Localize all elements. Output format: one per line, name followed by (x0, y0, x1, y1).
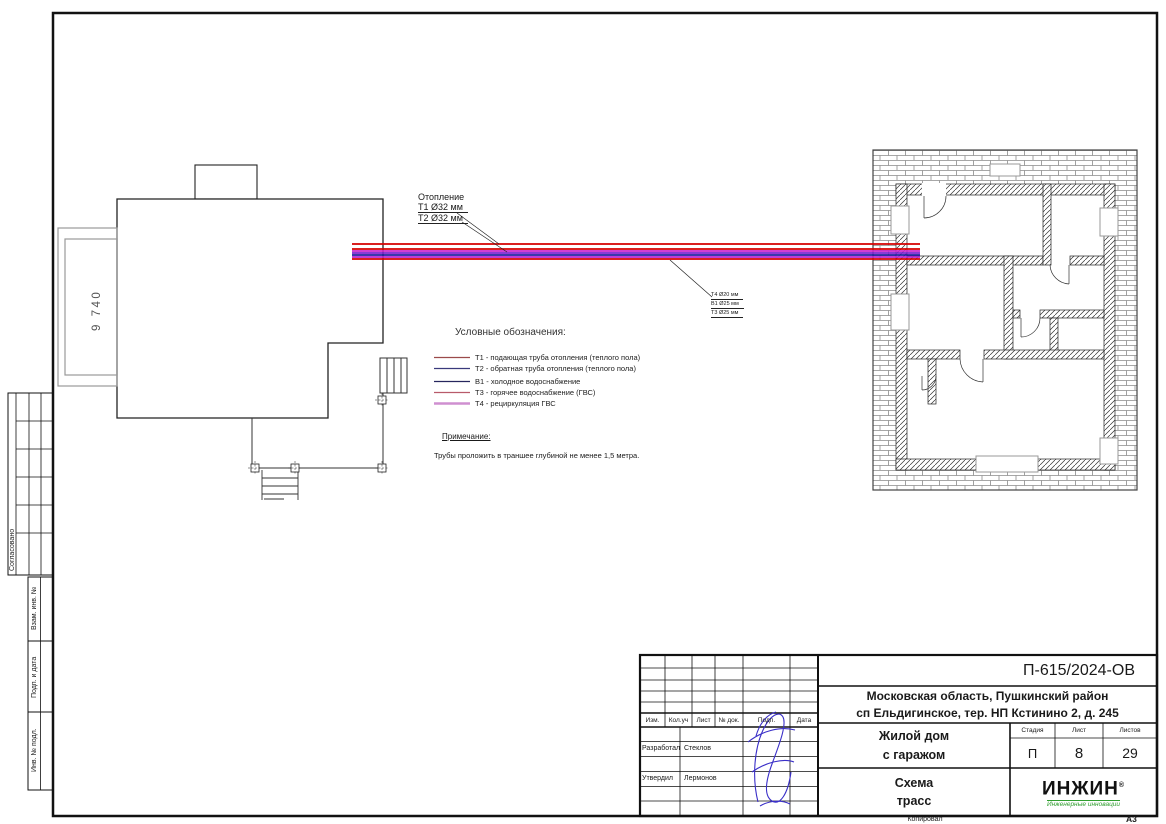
legend-swatches (434, 358, 470, 404)
legend-item-t1: Т1 - подающая труба отопления (теплого п… (475, 353, 640, 362)
margin-label-vzam-inv: Взам. инв. № (31, 587, 38, 630)
entrance-opening (922, 183, 946, 196)
tb-address: Московская область, Пушкинский район сп … (818, 687, 1157, 722)
terrace-outline (58, 228, 117, 386)
legend-title: Условные обозначения: (455, 327, 566, 338)
tb-object-line2: с гаражом (883, 746, 945, 765)
legend-item-t3: Т3 - горячее водоснабжение (ГВС) (475, 388, 595, 397)
water-callout: Т4 Ø20 мм В1 Ø25 мм Т3 Ø25 мм (711, 291, 744, 318)
margin-label-approved: Согласовано (9, 529, 16, 571)
heating-callout-pipe2: Т2 Ø32 мм (418, 213, 468, 224)
tb-object-line1: Жилой дом (879, 727, 949, 746)
tb-sheet-value: 8 (1055, 738, 1103, 768)
drawing-sheet: Отопление Т1 Ø32 мм Т2 Ø32 мм Т4 Ø20 мм … (0, 0, 1166, 824)
water-callout-pipe1: Т4 Ø20 мм (711, 291, 743, 300)
pipe-bundle (352, 244, 920, 259)
tb-object: Жилой дом с гаражом (818, 723, 1010, 768)
tb-col-kol: Кол.уч (665, 713, 692, 727)
legend-item-t2: Т2 - обратная труба отопления (теплого п… (475, 364, 636, 373)
legend-item-t4: Т4 - рециркуляция ГВС (475, 399, 556, 408)
logo-tagline: Инженерные инновации (1047, 800, 1120, 808)
company-logo: ИНЖИН® Инженерные инновации (1010, 768, 1157, 816)
tb-col-dok: № док. (715, 713, 743, 727)
tb-col-data: Дата (790, 713, 818, 727)
tb-stage-value: П (1010, 738, 1055, 768)
tb-developed-label: Разработал (642, 745, 680, 752)
heating-callout-pipe1: Т1 Ø32 мм (418, 202, 468, 213)
tb-sheets-label: Листов (1103, 723, 1157, 738)
note-text: Трубы проложить в траншее глубиной не ме… (434, 451, 639, 460)
legend-item-b1: В1 - холодное водоснабжение (475, 377, 580, 386)
tb-col-podp: Подп. (743, 713, 790, 727)
tb-approved-name: Лермонов (684, 775, 717, 782)
tb-drawing-title: Схема трасс (818, 768, 1010, 816)
margin-label-inv-podl: Инв. № подл. (31, 728, 38, 772)
dimension-label: 9 740 (91, 290, 103, 331)
format-label: А3 (1126, 814, 1137, 824)
note-title: Примечание: (442, 432, 491, 441)
tb-developed-name: Стеклов (684, 745, 711, 752)
tb-address-line2: сп Ельдигинское, тер. НП Кстинино 2, д. … (856, 705, 1119, 722)
building-right-plan (873, 150, 1137, 490)
tb-doc-code: П-615/2024-ОВ (818, 655, 1135, 686)
tb-drawing-title-line2: трасс (897, 792, 932, 810)
tb-stage-label: Стадия (1010, 723, 1055, 738)
water-callout-pipe2: В1 Ø25 мм (711, 300, 744, 309)
tb-col-list: Лист (692, 713, 715, 727)
building-left-outline (58, 165, 407, 500)
tb-approved-label: Утвердил (642, 775, 673, 782)
tb-address-line1: Московская область, Пушкинский район (867, 688, 1109, 705)
logo-reg-mark: ® (1119, 782, 1125, 789)
tb-sheet-label: Лист (1055, 723, 1103, 738)
tb-drawing-title-line1: Схема (895, 774, 934, 792)
tb-sheets-value: 29 (1103, 738, 1157, 768)
heating-callout-title: Отопление (418, 192, 468, 202)
tb-col-izm: Изм. (640, 713, 665, 727)
heating-callout: Отопление Т1 Ø32 мм Т2 Ø32 мм (418, 192, 468, 224)
copied-label: Копировал (880, 815, 970, 824)
margin-label-podp-data: Подп. и дата (31, 657, 38, 698)
water-callout-pipe3: Т3 Ø25 мм (711, 309, 743, 318)
logo-wordmark: ИНЖИН (1042, 779, 1119, 800)
